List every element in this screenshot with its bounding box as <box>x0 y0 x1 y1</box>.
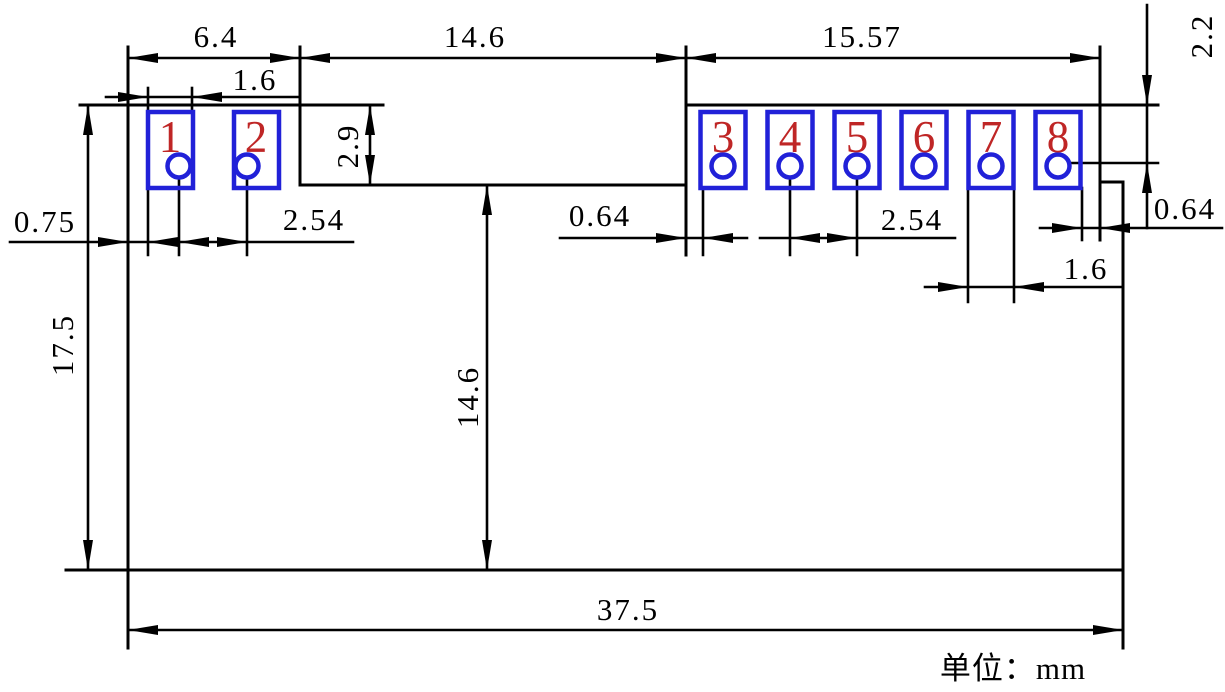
dim-label-right-section-width: 15.57 <box>822 19 902 54</box>
arrowhead <box>1070 53 1100 63</box>
pad-number-7: 7 <box>980 112 1003 162</box>
dim-label-notch-to-bottom: 14.6 <box>450 366 485 428</box>
module-footprint-drawing: 1 2 3 4 5 6 7 8 6.4 14.6 15.57 1.6 2.2 2… <box>0 0 1225 692</box>
dim-label-body-width: 37.5 <box>597 592 659 627</box>
arrowhead <box>1142 75 1152 105</box>
pad-number-2: 2 <box>245 112 268 162</box>
arrowhead <box>703 233 733 243</box>
dim-label-notch-depth: 2.9 <box>330 124 365 169</box>
arrowhead <box>365 105 375 135</box>
arrowhead <box>148 237 178 247</box>
dim-label-notch-width: 14.6 <box>444 19 506 54</box>
pad-numbers: 1 2 3 4 5 6 7 8 <box>159 112 1070 162</box>
dimension-drawing: 1 2 3 4 5 6 7 8 6.4 14.6 15.57 1.6 2.2 2… <box>0 0 1225 692</box>
arrowhead <box>118 92 148 102</box>
pad-number-3: 3 <box>712 112 735 162</box>
dim-label-left-edge-to-pad: 0.75 <box>14 204 76 239</box>
arrowhead <box>1093 625 1123 635</box>
arrowhead <box>1052 223 1082 233</box>
arrowhead <box>1142 163 1152 193</box>
arrowhead <box>827 233 857 243</box>
arrowhead <box>656 53 686 63</box>
solder-pads <box>148 112 1081 188</box>
arrowhead <box>686 53 716 63</box>
arrowhead <box>83 540 93 570</box>
arrowhead <box>179 237 209 247</box>
dim-label-body-height: 17.5 <box>45 314 80 376</box>
arrowhead <box>98 237 128 247</box>
arrowhead <box>128 625 158 635</box>
dim-label-hole-pitch-left: 2.54 <box>283 202 345 237</box>
dim-label-left-section-width: 6.4 <box>194 19 239 54</box>
arrowhead <box>790 233 820 243</box>
arrowhead <box>1014 282 1044 292</box>
dim-label-hole-pitch-right: 2.54 <box>881 202 943 237</box>
arrowhead <box>938 282 968 292</box>
pad-number-5: 5 <box>846 112 869 162</box>
dim-label-gap-mid: 0.64 <box>569 198 631 233</box>
dim-label-gap-right: 0.64 <box>1154 191 1216 226</box>
arrowhead <box>1100 223 1130 233</box>
pad-number-6: 6 <box>913 112 936 162</box>
pad-number-8: 8 <box>1047 112 1070 162</box>
arrowhead <box>128 53 158 63</box>
dim-label-pad-width-top: 1.6 <box>233 62 278 97</box>
arrowhead <box>365 155 375 185</box>
arrowhead <box>300 53 330 63</box>
unit-note: 单位：mm <box>940 651 1086 686</box>
arrowhead <box>217 237 247 247</box>
arrowhead <box>482 185 492 215</box>
arrowhead <box>656 233 686 243</box>
dim-label-top-to-hole: 2.2 <box>1184 14 1219 59</box>
dim-label-pad-width-bottom: 1.6 <box>1064 251 1109 286</box>
dimension-lines <box>10 5 1222 630</box>
arrowhead <box>192 92 222 102</box>
pad-number-1: 1 <box>159 112 182 162</box>
arrowhead <box>482 540 492 570</box>
pad-number-4: 4 <box>779 112 802 162</box>
arrowhead <box>83 105 93 135</box>
